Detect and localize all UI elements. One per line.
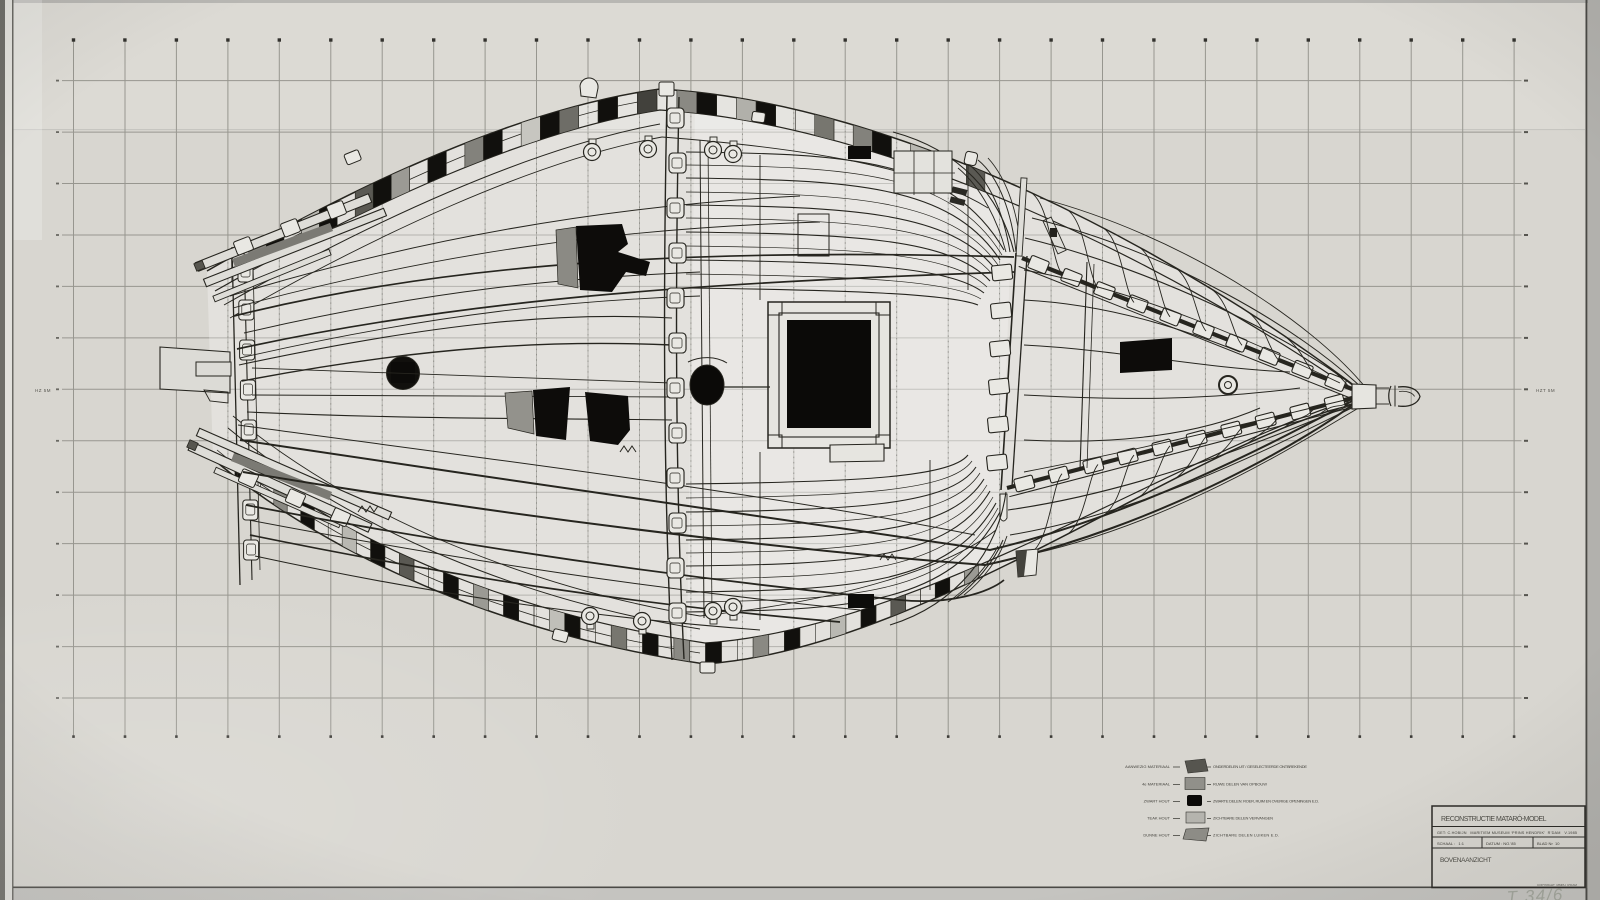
svg-text:TEAK HOUT: TEAK HOUT bbox=[1147, 816, 1170, 821]
svg-text:HZ 5M: HZ 5M bbox=[35, 388, 51, 393]
svg-text:HZT 5M: HZT 5M bbox=[1536, 388, 1555, 393]
svg-text:ZWARTE DELEN: ROER, RUIM EN OV: ZWARTE DELEN: ROER, RUIM EN OVERIGE OPEN… bbox=[1213, 799, 1319, 804]
svg-text:ZICHTBARE DELEN LUIKEN E.D.: ZICHTBARE DELEN LUIKEN E.D. bbox=[1213, 833, 1279, 838]
svg-text:AANWEZIG MATERIAAL: AANWEZIG MATERIAAL bbox=[1125, 764, 1171, 769]
svg-text:BOVENAANZICHT: BOVENAANZICHT bbox=[1440, 857, 1492, 864]
svg-text:DATUM : NO.’85: DATUM : NO.’85 bbox=[1486, 841, 1516, 846]
svg-text:4e MATERIAAL: 4e MATERIAAL bbox=[1142, 782, 1171, 787]
svg-text:RECONSTRUCTIE MATARÓ-MODEL: RECONSTRUCTIE MATARÓ-MODEL bbox=[1441, 814, 1547, 823]
svg-text:GET: C.HOBIJN MARITIEM MUSEU: GET: C.HOBIJN MARITIEM MUSEUM ‘PRINS HEN… bbox=[1437, 831, 1577, 835]
svg-text:T 34/6: T 34/6 bbox=[1506, 885, 1564, 900]
svg-text:SCHAAL : 1:1: SCHAAL : 1:1 bbox=[1437, 841, 1465, 846]
svg-text:BLAD Nr 10: BLAD Nr 10 bbox=[1537, 841, 1560, 846]
svg-text:ZWART HOUT: ZWART HOUT bbox=[1144, 799, 1171, 804]
svg-text:RUWE DELEN VAN OPBOUW: RUWE DELEN VAN OPBOUW bbox=[1213, 782, 1267, 787]
svg-text:ONDERDELEN UIT / GESELECTEERDE: ONDERDELEN UIT / GESELECTEERDE ONTBREKEN… bbox=[1213, 764, 1307, 769]
svg-text:ZICHTBARE DELEN VERVANGEN: ZICHTBARE DELEN VERVANGEN bbox=[1213, 816, 1273, 821]
svg-text:DUNNE HOUT: DUNNE HOUT bbox=[1143, 833, 1170, 838]
